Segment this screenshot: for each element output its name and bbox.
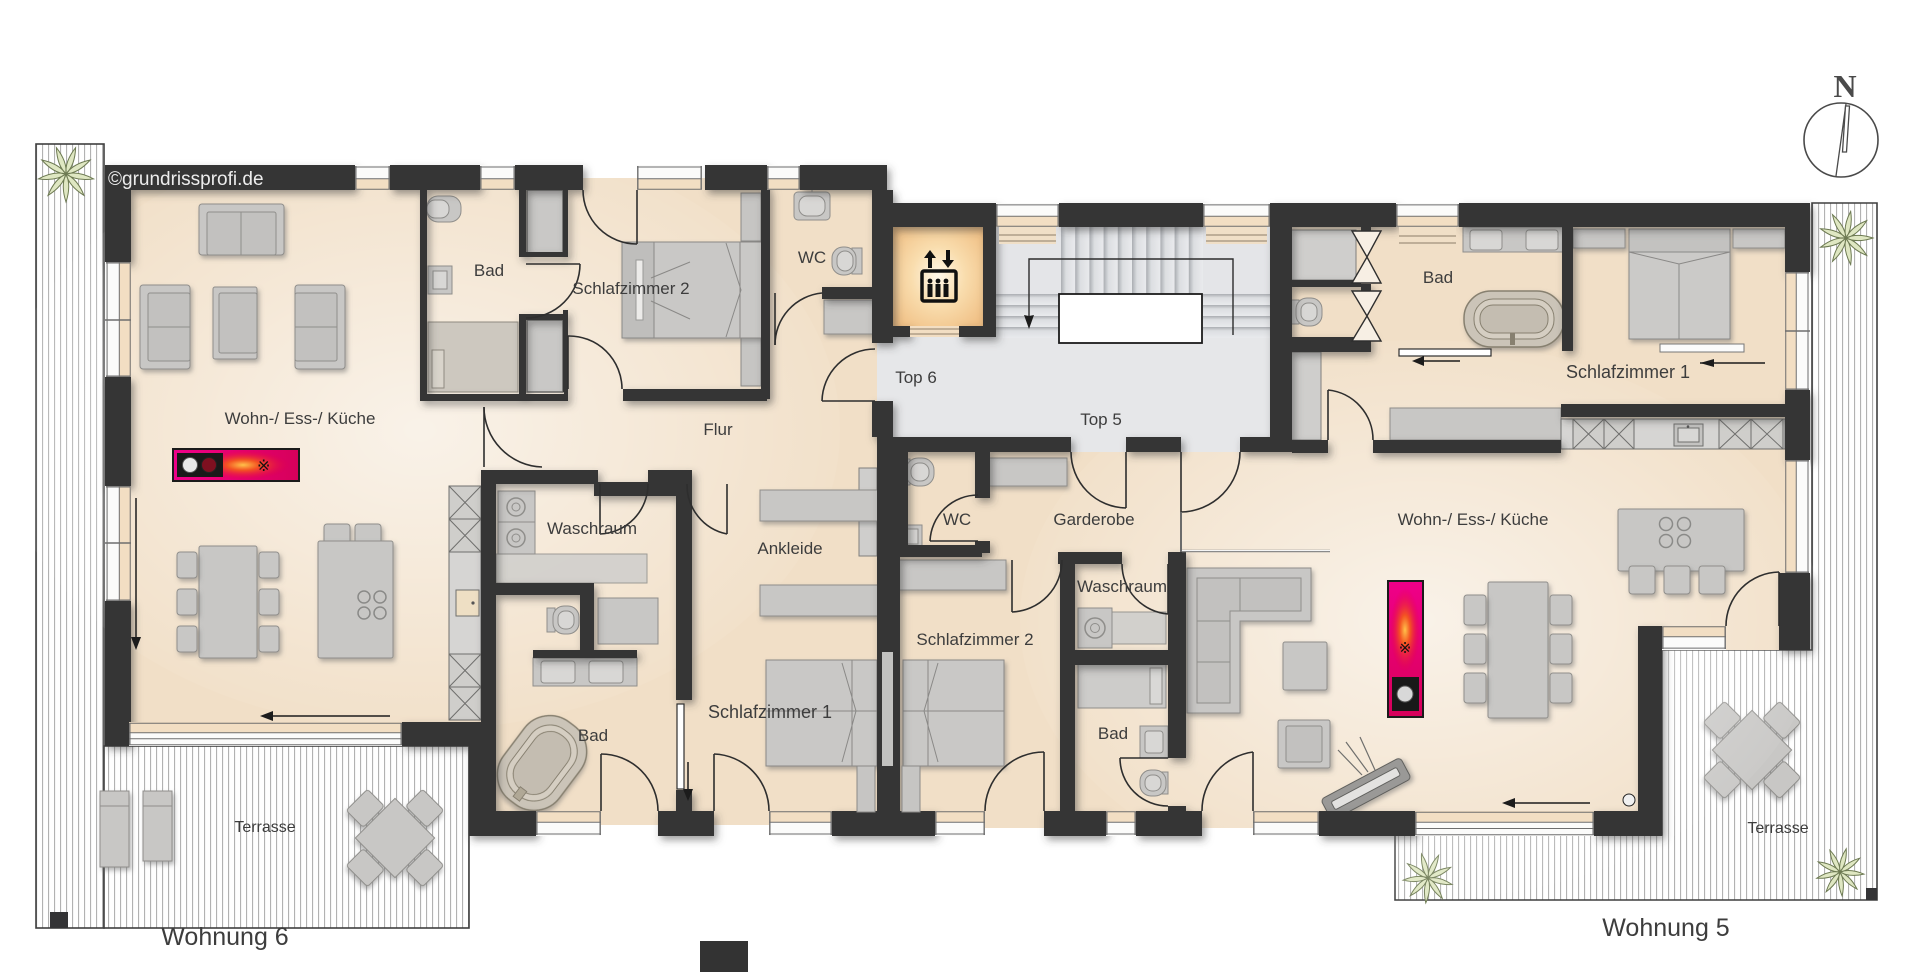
svg-text:Schlafzimmer 1: Schlafzimmer 1 — [708, 702, 832, 722]
svg-text:Wohnung 5: Wohnung 5 — [1602, 914, 1729, 942]
svg-text:Bad: Bad — [578, 726, 608, 745]
svg-text:※: ※ — [1399, 640, 1412, 657]
svg-text:Flur: Flur — [703, 420, 733, 439]
svg-text:WC: WC — [798, 248, 826, 267]
svg-text:Top 5: Top 5 — [1080, 410, 1122, 429]
svg-text:Wohn-/ Ess-/ Küche: Wohn-/ Ess-/ Küche — [225, 409, 376, 428]
svg-text:Waschraum: Waschraum — [1077, 577, 1167, 596]
svg-text:Wohnung 6: Wohnung 6 — [161, 923, 288, 951]
svg-text:Garderobe: Garderobe — [1053, 510, 1134, 529]
svg-text:Terrasse: Terrasse — [234, 819, 295, 836]
svg-text:Bad: Bad — [474, 261, 504, 280]
svg-text:Schlafzimmer 2: Schlafzimmer 2 — [572, 279, 689, 298]
svg-text:Schlafzimmer 2: Schlafzimmer 2 — [916, 630, 1033, 649]
svg-text:Schlafzimmer 1: Schlafzimmer 1 — [1566, 362, 1690, 382]
svg-text:Waschraum: Waschraum — [547, 519, 637, 538]
svg-text:※: ※ — [257, 458, 270, 475]
svg-text:Terrasse: Terrasse — [1747, 820, 1808, 837]
svg-text:N: N — [1833, 68, 1856, 104]
svg-text:Bad: Bad — [1098, 724, 1128, 743]
svg-text:Bad: Bad — [1423, 268, 1453, 287]
svg-text:Wohn-/ Ess-/ Küche: Wohn-/ Ess-/ Küche — [1398, 510, 1549, 529]
svg-text:WC: WC — [943, 510, 971, 529]
svg-text:Ankleide: Ankleide — [757, 539, 822, 558]
svg-text:©grundrissprofi.de: ©grundrissprofi.de — [108, 169, 264, 190]
svg-text:Top 6: Top 6 — [895, 368, 937, 387]
